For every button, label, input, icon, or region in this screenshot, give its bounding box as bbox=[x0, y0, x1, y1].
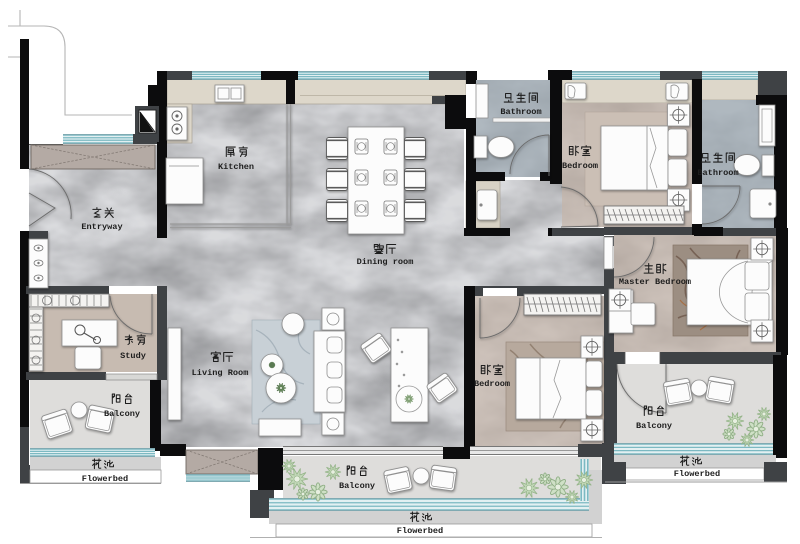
svg-text:Bathroom: Bathroom bbox=[697, 168, 738, 178]
svg-text:Kitchen: Kitchen bbox=[218, 162, 254, 172]
svg-text:Living Room: Living Room bbox=[192, 368, 249, 378]
svg-text:Dining room: Dining room bbox=[357, 257, 414, 267]
svg-text:Flowerbed: Flowerbed bbox=[674, 469, 720, 479]
svg-text:Entryway: Entryway bbox=[81, 222, 122, 232]
svg-text:Study: Study bbox=[120, 351, 146, 361]
svg-text:Flowerbed: Flowerbed bbox=[397, 526, 443, 536]
svg-text:Master Bedroom: Master Bedroom bbox=[619, 277, 691, 287]
svg-text:Balcony: Balcony bbox=[104, 409, 140, 419]
svg-text:Balcony: Balcony bbox=[339, 481, 375, 491]
svg-text:Balcony: Balcony bbox=[636, 421, 672, 431]
svg-text:Bathroom: Bathroom bbox=[500, 107, 541, 117]
svg-text:Flowerbed: Flowerbed bbox=[82, 474, 128, 484]
svg-text:Bedroom: Bedroom bbox=[562, 161, 598, 171]
svg-text:Bedroom: Bedroom bbox=[474, 379, 510, 389]
